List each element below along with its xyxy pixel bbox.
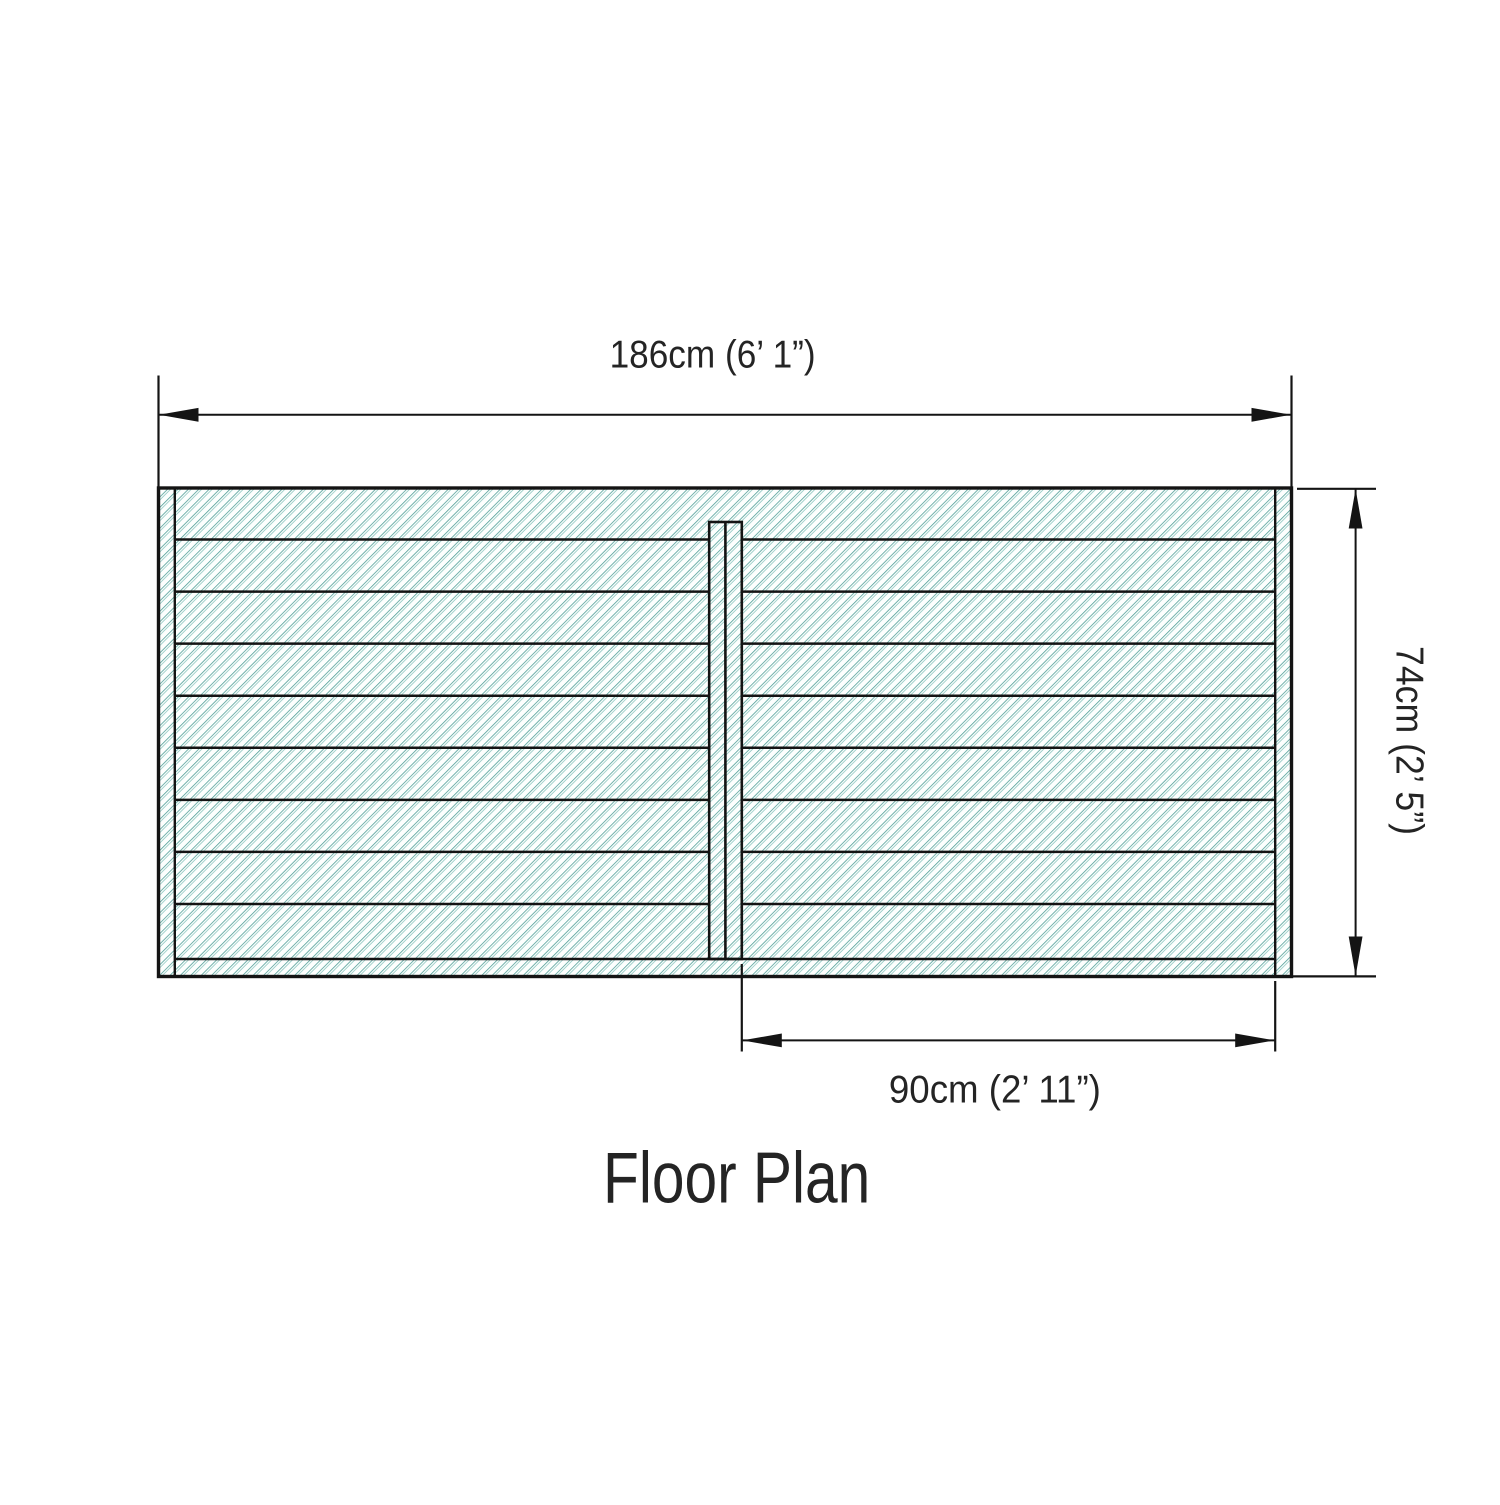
svg-text:90cm (2’ 11”): 90cm (2’ 11”) [889,1069,1101,1112]
svg-text:186cm (6’ 1”): 186cm (6’ 1”) [610,334,816,377]
svg-text:74cm (2’ 5”): 74cm (2’ 5”) [1388,646,1431,835]
svg-text:Floor Plan: Floor Plan [603,1138,870,1219]
